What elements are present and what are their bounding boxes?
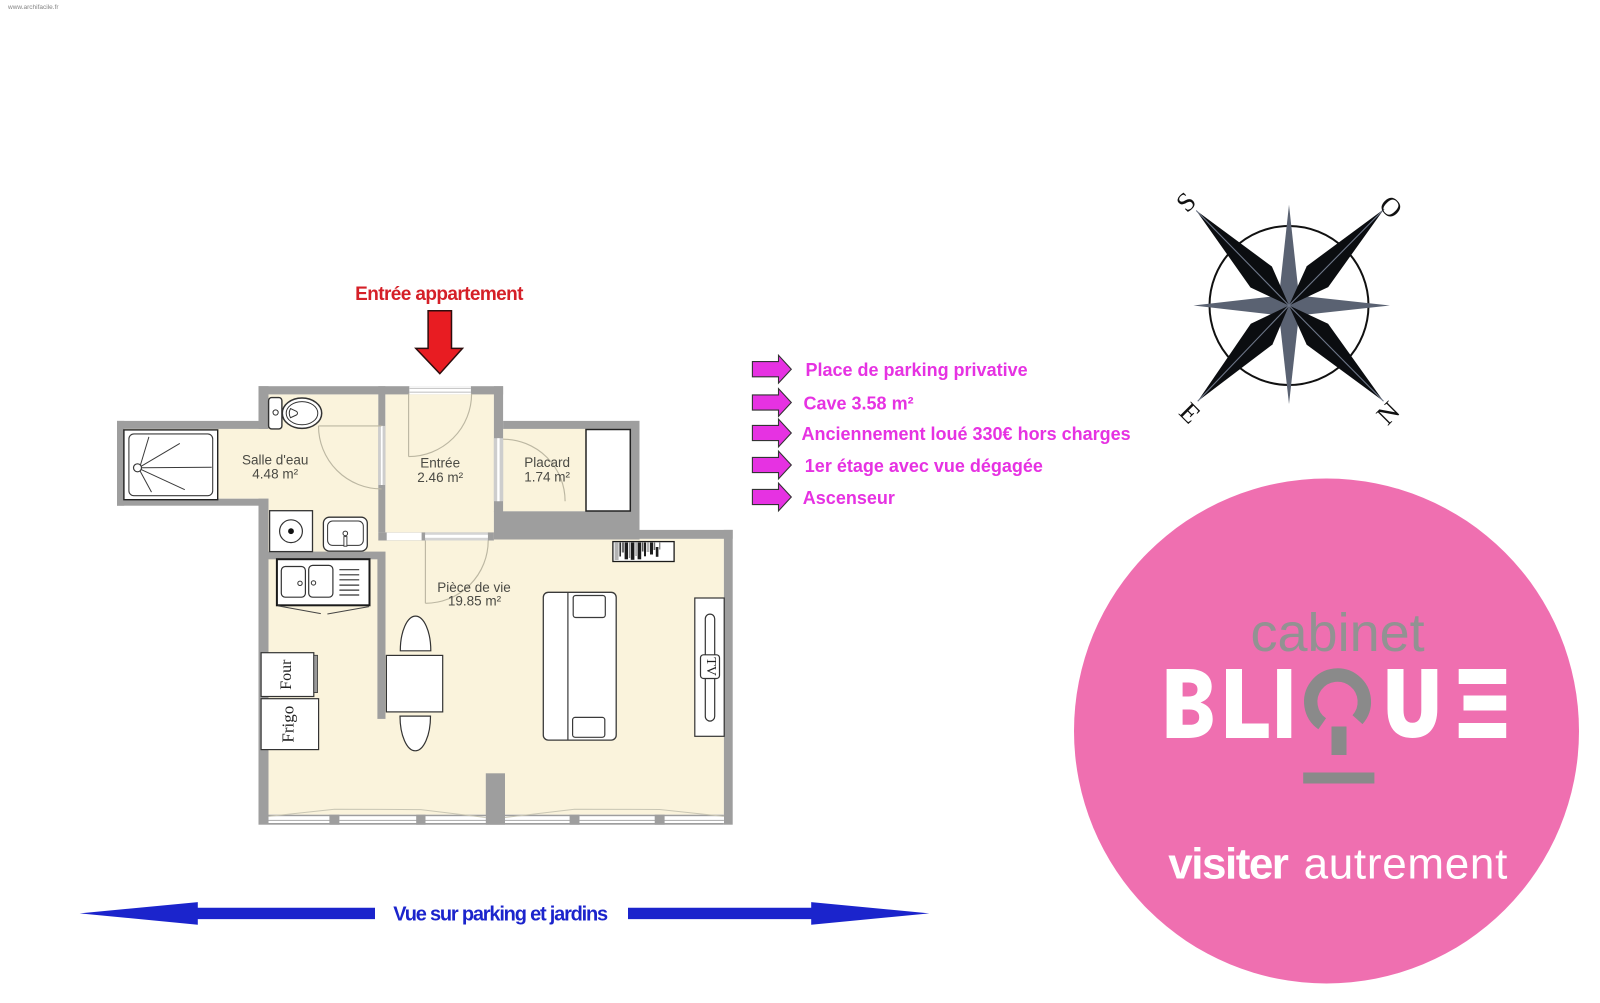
svg-text:Entrée appartement: Entrée appartement [355,284,524,305]
svg-text:Frigo: Frigo [279,706,298,743]
svg-text:Entrée: Entrée [420,456,460,471]
svg-text:19.85 m²: 19.85 m² [448,594,502,609]
svg-text:1.74 m²: 1.74 m² [524,470,570,485]
svg-text:visiterautrement: visiterautrement [1168,840,1508,889]
svg-text:N: N [1370,395,1405,430]
svg-text:E: E [1174,397,1207,430]
svg-text:Ascenseur: Ascenseur [803,488,895,508]
svg-text:1er étage avec vue dégagée: 1er étage avec vue dégagée [805,456,1043,476]
svg-text:2.46 m²: 2.46 m² [417,470,463,485]
svg-text:cabinet: cabinet [1251,603,1425,663]
svg-text:www.archifacile.fr: www.archifacile.fr [7,4,59,11]
svg-text:Cave 3.58 m²: Cave 3.58 m² [804,394,914,414]
svg-text:Four: Four [278,659,295,690]
svg-text:Anciennement loué 330€ hors ch: Anciennement loué 330€ hors charges [802,424,1131,444]
svg-text:4.48 m²: 4.48 m² [252,467,298,482]
svg-text:TV: TV [703,657,718,676]
svg-text:S: S [1170,186,1202,218]
svg-text:O: O [1373,189,1408,224]
svg-text:Placard: Placard [524,455,570,470]
svg-text:Place de parking privative: Place de parking privative [806,360,1028,380]
svg-text:Vue sur parking et jardins: Vue sur parking et jardins [393,904,608,926]
svg-text:Salle d'eau: Salle d'eau [242,452,308,467]
